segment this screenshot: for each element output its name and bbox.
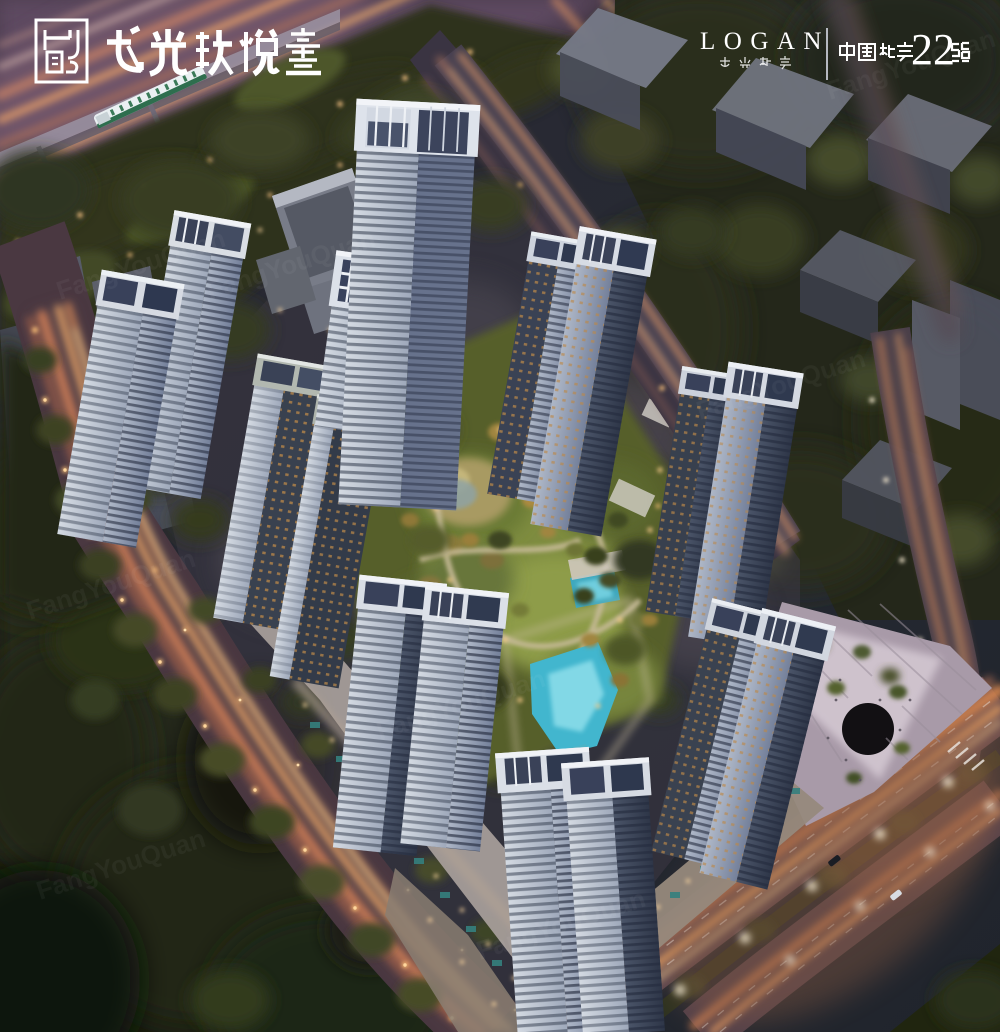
svg-text:22: 22 [911, 25, 955, 74]
svg-text:LOGAN: LOGAN [700, 28, 830, 55]
